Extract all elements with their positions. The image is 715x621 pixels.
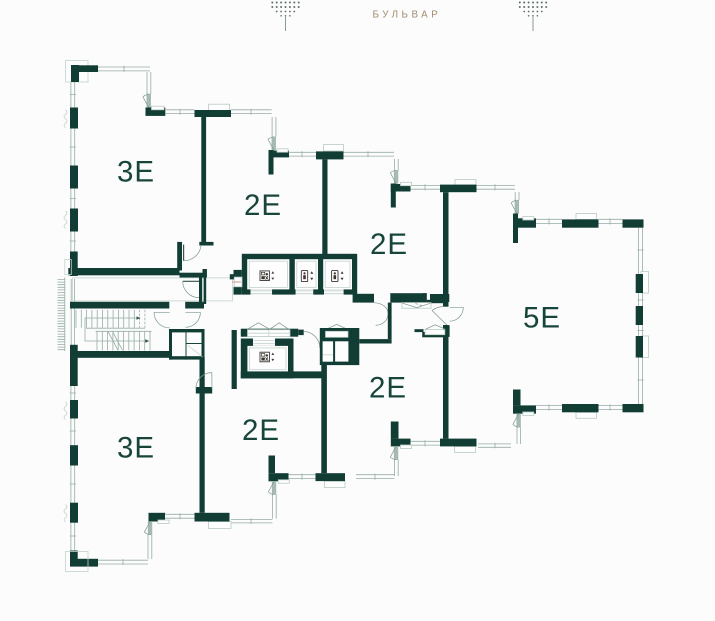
svg-text:2E: 2E [370,228,408,261]
svg-text:3E: 3E [117,432,155,465]
svg-text:2E: 2E [244,189,282,222]
svg-text:3E: 3E [117,156,155,189]
svg-text:2E: 2E [369,372,407,405]
svg-text:5E: 5E [523,302,561,335]
svg-text:2E: 2E [242,414,280,447]
svg-text:БУЛЬВАР: БУЛЬВАР [373,10,442,21]
